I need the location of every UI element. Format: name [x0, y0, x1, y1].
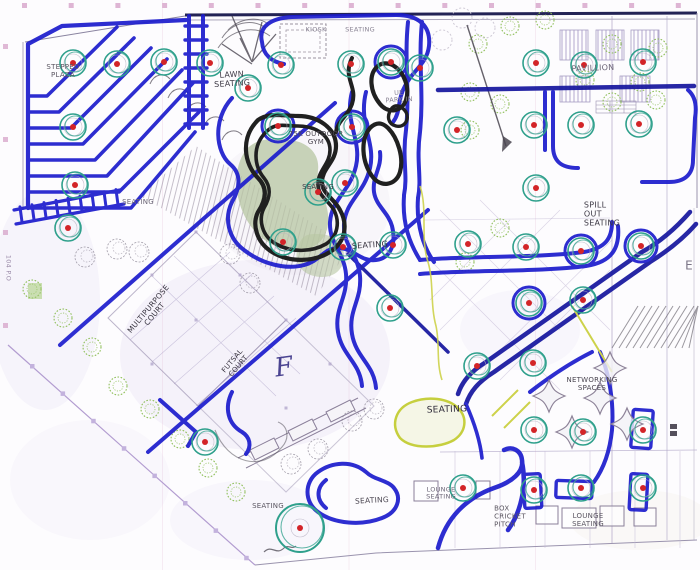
tree-icon — [523, 50, 549, 76]
tree-icon — [270, 229, 296, 255]
tree-icon — [407, 55, 433, 81]
cad-tree-icon — [461, 83, 479, 101]
grid-tick — [3, 230, 8, 235]
grid-tick — [256, 3, 261, 8]
tree-icon — [570, 419, 596, 445]
tree-icon — [268, 52, 294, 78]
tree-icon — [568, 475, 594, 501]
grid-tick — [115, 3, 120, 8]
tree-icon — [523, 175, 549, 201]
tree-icon — [339, 114, 365, 140]
tree-icon — [235, 75, 261, 101]
cad-tree-icon — [199, 459, 217, 477]
pencil-tree-icon — [452, 8, 472, 28]
tree-icon — [455, 231, 481, 257]
pencil-tree-icon — [107, 239, 127, 259]
tree-icon — [330, 234, 356, 260]
grid-tick — [302, 3, 307, 8]
tree-icon — [380, 232, 406, 258]
tree-icon — [265, 113, 291, 139]
site-plan-sketch: STEPPED PLAZA KIOSK SEATING LAWN SEATING… — [0, 0, 700, 570]
grid-tick — [69, 3, 74, 8]
tree-icon — [568, 112, 594, 138]
tree-icon — [521, 112, 547, 138]
tree-icon — [628, 233, 654, 259]
grid-tick — [676, 3, 681, 8]
grid-tick — [3, 323, 8, 328]
tree-icon — [513, 234, 539, 260]
tree-icon — [520, 350, 546, 376]
tree-icon — [570, 287, 596, 313]
canopy-icon — [611, 408, 643, 440]
tree-icon — [377, 295, 403, 321]
tree-icon — [60, 50, 86, 76]
tree-icon — [192, 429, 218, 455]
grid-tick — [3, 137, 8, 142]
pencil-tree-icon — [129, 242, 149, 262]
tree-icon — [62, 172, 88, 198]
tree-icon — [151, 49, 177, 75]
grid-tick — [536, 3, 541, 8]
grid-tick — [396, 3, 401, 8]
tree-icon — [332, 170, 358, 196]
pencil-tree-icon — [432, 30, 452, 50]
tree-icon — [521, 477, 547, 503]
grid-tick — [582, 3, 587, 8]
tree-icon — [60, 114, 86, 140]
tree-icon — [444, 117, 470, 143]
grid-tick — [3, 44, 8, 49]
tree-icon — [626, 111, 652, 137]
tree-icon — [450, 475, 476, 501]
furniture-icon — [670, 424, 677, 436]
grid-tick — [629, 3, 634, 8]
grid-tick — [442, 3, 447, 8]
tree-icon — [571, 52, 597, 78]
tree-icon — [464, 353, 490, 379]
tree-icon — [630, 417, 656, 443]
tree-icon — [516, 290, 542, 316]
cad-table-icon — [596, 101, 636, 113]
cad-tree-icon — [491, 95, 509, 113]
seating-pod-outline — [308, 464, 399, 523]
canopy-icon — [594, 352, 626, 384]
tree-icon — [630, 475, 656, 501]
pencil-tree-icon — [281, 454, 301, 474]
tree-icon — [55, 215, 81, 241]
grid-tick — [22, 3, 27, 8]
tree-icon — [630, 49, 656, 75]
grid-tick — [489, 3, 494, 8]
grid-tick — [349, 3, 354, 8]
tree-icon — [197, 50, 223, 76]
tree-icon — [378, 49, 404, 75]
tree-icon — [338, 51, 364, 77]
canopy-structures — [533, 352, 643, 448]
tree-icon — [305, 179, 331, 205]
cad-tree-icon — [491, 219, 509, 237]
cad-tree-icon — [109, 377, 127, 395]
tree-icon — [521, 417, 547, 443]
grid-tick — [209, 3, 214, 8]
pencil-tree-icon — [308, 439, 328, 459]
plan-drawing — [0, 0, 700, 570]
parking-path — [404, 22, 422, 198]
tree-icon — [104, 51, 130, 77]
pencil-tree-icon — [364, 399, 384, 419]
tree-icon — [568, 238, 594, 264]
